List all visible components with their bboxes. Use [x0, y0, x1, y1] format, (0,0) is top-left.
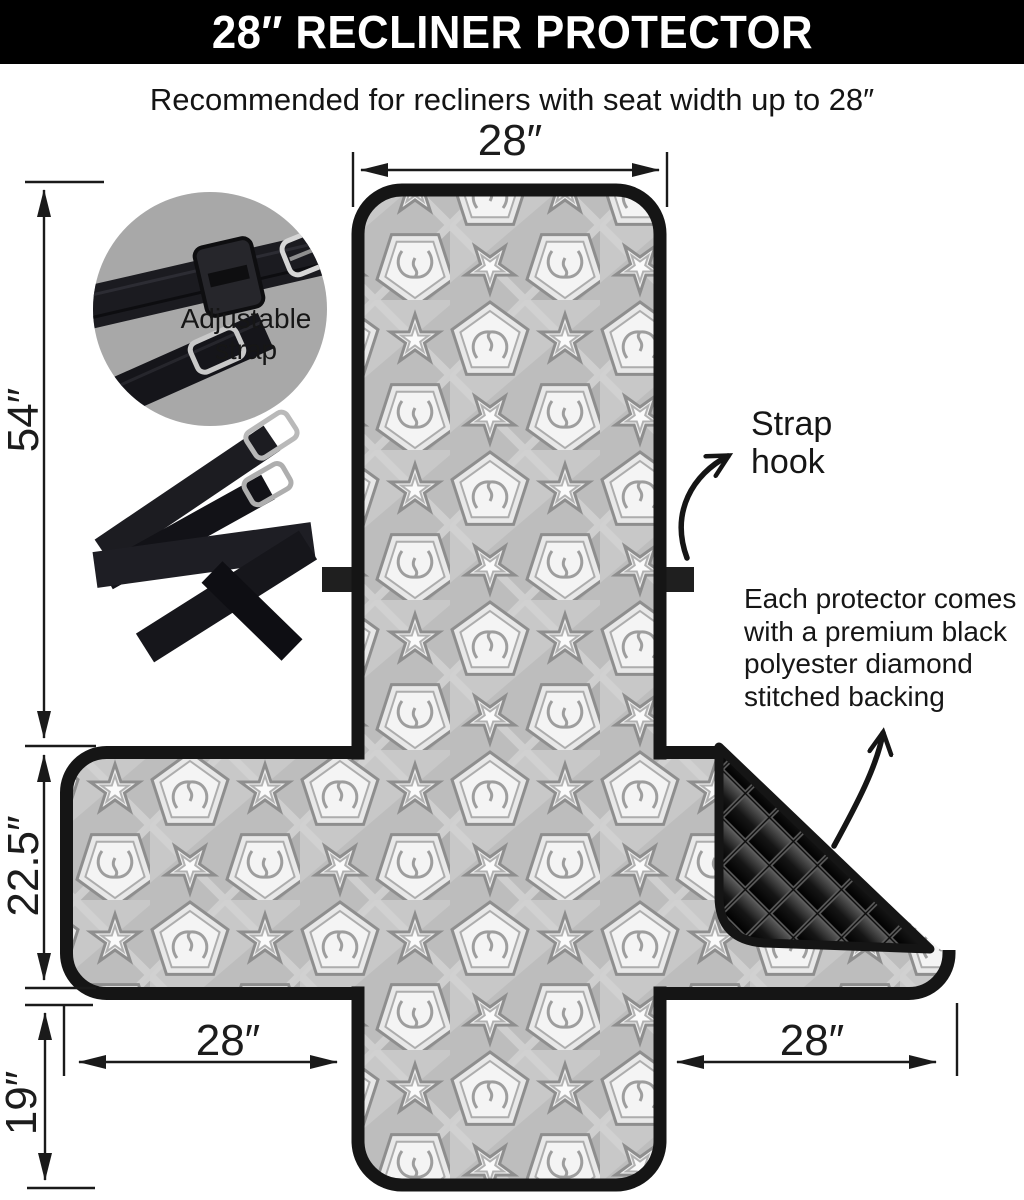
- adjustable-strap-line2: strap: [167, 334, 325, 365]
- product-infographic: 28″ RECLINER PROTECTOR Recommended for r…: [0, 0, 1024, 1200]
- loose-straps-photo: [95, 410, 313, 650]
- dim-label-side-height: 54″: [0, 355, 45, 485]
- dim-label-top-width: 28″: [448, 116, 572, 166]
- backing-note-line1: Each protector comes: [744, 583, 1016, 616]
- strap-hook-line1: Strap: [751, 405, 832, 443]
- strap-hook-label: Strap hook: [751, 405, 832, 481]
- backing-note-line3: polyester diamond: [744, 648, 1016, 681]
- strap-tab-right-icon: [664, 567, 694, 592]
- vertical-panel: [358, 190, 660, 1185]
- strap-hook-line2: hook: [751, 443, 832, 481]
- dim-label-right-wing: 28″: [750, 1016, 874, 1066]
- adjustable-strap-label: Adjustable strap: [167, 303, 325, 365]
- junction-patch: [348, 760, 672, 987]
- adjustable-strap-line1: Adjustable: [167, 303, 325, 334]
- strap-hook-arrow-icon: [681, 456, 728, 558]
- backing-note-line2: with a premium black: [744, 616, 1016, 649]
- backing-note-line4: stitched backing: [744, 681, 1016, 714]
- strap-tab-left-icon: [322, 567, 356, 592]
- backing-note: Each protector comes with a premium blac…: [744, 583, 1016, 713]
- dim-label-wing-height: 22.5″: [0, 791, 45, 941]
- dim-label-left-wing: 28″: [166, 1016, 290, 1066]
- dim-label-flap-height: 19″: [0, 1038, 43, 1168]
